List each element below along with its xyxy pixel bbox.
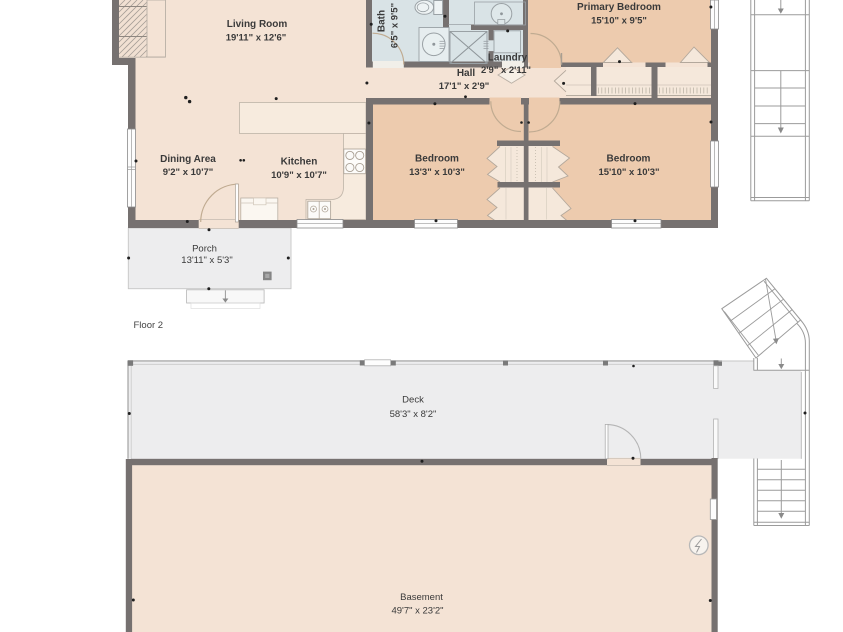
svg-text:Bath: Bath (377, 10, 388, 32)
svg-text:13'11" x 5'3": 13'11" x 5'3" (181, 255, 232, 266)
svg-text:Porch: Porch (192, 244, 217, 255)
svg-text:Bedroom: Bedroom (415, 153, 459, 164)
svg-text:Dining Area: Dining Area (160, 154, 216, 165)
svg-text:Floor 2: Floor 2 (134, 320, 164, 331)
svg-text:Primary Bedroom: Primary Bedroom (577, 2, 661, 13)
svg-text:10'9" x 10'7": 10'9" x 10'7" (271, 170, 327, 181)
svg-text:Basement: Basement (400, 592, 443, 603)
svg-text:49'7" x 23'2": 49'7" x 23'2" (391, 606, 443, 617)
svg-text:Laundry: Laundry (488, 52, 528, 63)
svg-text:Deck: Deck (402, 395, 424, 406)
svg-text:15'10" x 9'5": 15'10" x 9'5" (591, 16, 647, 27)
svg-text:15'10" x 10'3": 15'10" x 10'3" (598, 167, 659, 178)
svg-text:19'11" x 12'6": 19'11" x 12'6" (226, 33, 287, 44)
svg-text:13'3" x 10'3": 13'3" x 10'3" (409, 167, 465, 178)
svg-text:Kitchen: Kitchen (281, 156, 318, 167)
svg-text:17'1" x 2'9": 17'1" x 2'9" (439, 81, 490, 92)
svg-text:9'2" x 10'7": 9'2" x 10'7" (163, 167, 214, 178)
svg-text:58'3" x 8'2": 58'3" x 8'2" (390, 409, 437, 420)
svg-text:Bedroom: Bedroom (607, 153, 651, 164)
svg-text:2'9" x 2'11": 2'9" x 2'11" (481, 65, 531, 76)
svg-text:Living Room: Living Room (227, 19, 288, 30)
svg-text:6'5" x 9'5": 6'5" x 9'5" (390, 3, 401, 48)
svg-text:Hall: Hall (457, 68, 476, 79)
